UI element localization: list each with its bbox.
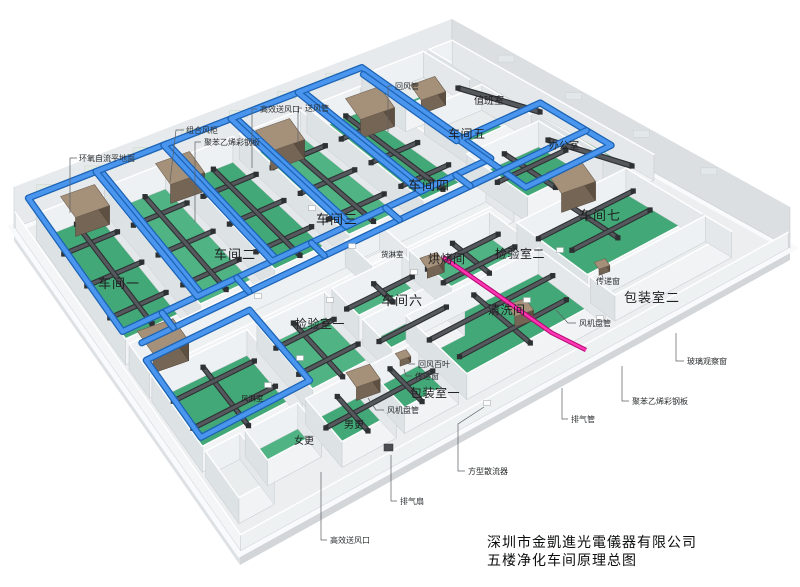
room-label-workshop4: 车间四 <box>408 178 450 193</box>
label-overlay: 车间一 车间二 车间三 车间四 车间五 车间六 车间七 检验室一 检验室二 烘烤… <box>0 0 800 587</box>
room-label-workshop5: 车间五 <box>448 126 486 141</box>
callout-steel-panel-right: 聚苯乙烯彩钢板 <box>632 396 688 406</box>
room-label-workshop7: 车间七 <box>579 208 621 223</box>
callout-square-diffuser: 方型散流器 <box>468 466 508 476</box>
room-label-duty-room: 值班室 <box>474 94 504 107</box>
callout-hepa-outlet-top: 高效送风口 <box>260 104 300 114</box>
callout-glass-window: 玻璃观察窗 <box>687 356 727 366</box>
title-company: 深圳市金凱進光電儀器有限公司 <box>487 534 697 551</box>
cleanroom-isometric-diagram: 车间一 车间二 车间三 车间四 车间五 车间六 车间七 检验室一 检验室二 烘烤… <box>0 0 800 587</box>
room-label-baking: 烘烤间 <box>428 251 466 266</box>
callout-exhaust-pipe: 排气管 <box>571 414 595 424</box>
room-label-workshop2: 车间二 <box>214 247 256 262</box>
room-label-workshop6: 车间六 <box>381 293 423 308</box>
room-label-office: 办公室 <box>549 139 579 152</box>
callout-steel-panel-top: 聚苯乙烯彩钢板 <box>204 137 260 147</box>
room-label-cleaning: 清洗间 <box>488 303 526 317</box>
callout-return-duct: 回风管 <box>395 81 419 91</box>
room-label-inspection2: 检验室二 <box>495 246 545 261</box>
callout-leader-lines <box>70 86 684 540</box>
room-label-inspection1: 检验室一 <box>295 316 345 331</box>
room-label-men-change: 男更 <box>344 419 364 431</box>
callout-hepa-outlet-bottom: 高效送风口 <box>330 535 370 545</box>
callout-return-louver: 回风百叶 <box>418 360 450 369</box>
callout-supply-duct: 送风管 <box>305 103 329 113</box>
callout-epoxy-floor: 环氧自流平地面 <box>79 153 135 163</box>
room-label-workshop3: 车间三 <box>316 212 358 227</box>
title-drawing: 五楼净化车间原理总图 <box>487 552 637 569</box>
callout-transfer-window-right: 传递窗 <box>596 276 620 286</box>
room-label-packing1: 包装室一 <box>410 385 460 400</box>
room-label-workshop1: 车间一 <box>98 276 140 291</box>
room-label-air-shower: 风淋室 <box>241 393 264 403</box>
room-label-cargo-shower: 货淋室 <box>381 249 404 259</box>
callout-air-cabinet: 组合风柜 <box>186 125 218 135</box>
callout-transfer-window-mid: 传递窗 <box>415 371 439 381</box>
callout-fan-coil-right: 风机盘管 <box>579 318 611 328</box>
callout-fan-coil-left: 风机盘管 <box>387 405 419 415</box>
room-label-packing2: 包装室二 <box>624 290 680 305</box>
room-label-women-change: 女更 <box>294 434 314 447</box>
callout-exhaust-fan: 排气扇 <box>400 496 424 506</box>
